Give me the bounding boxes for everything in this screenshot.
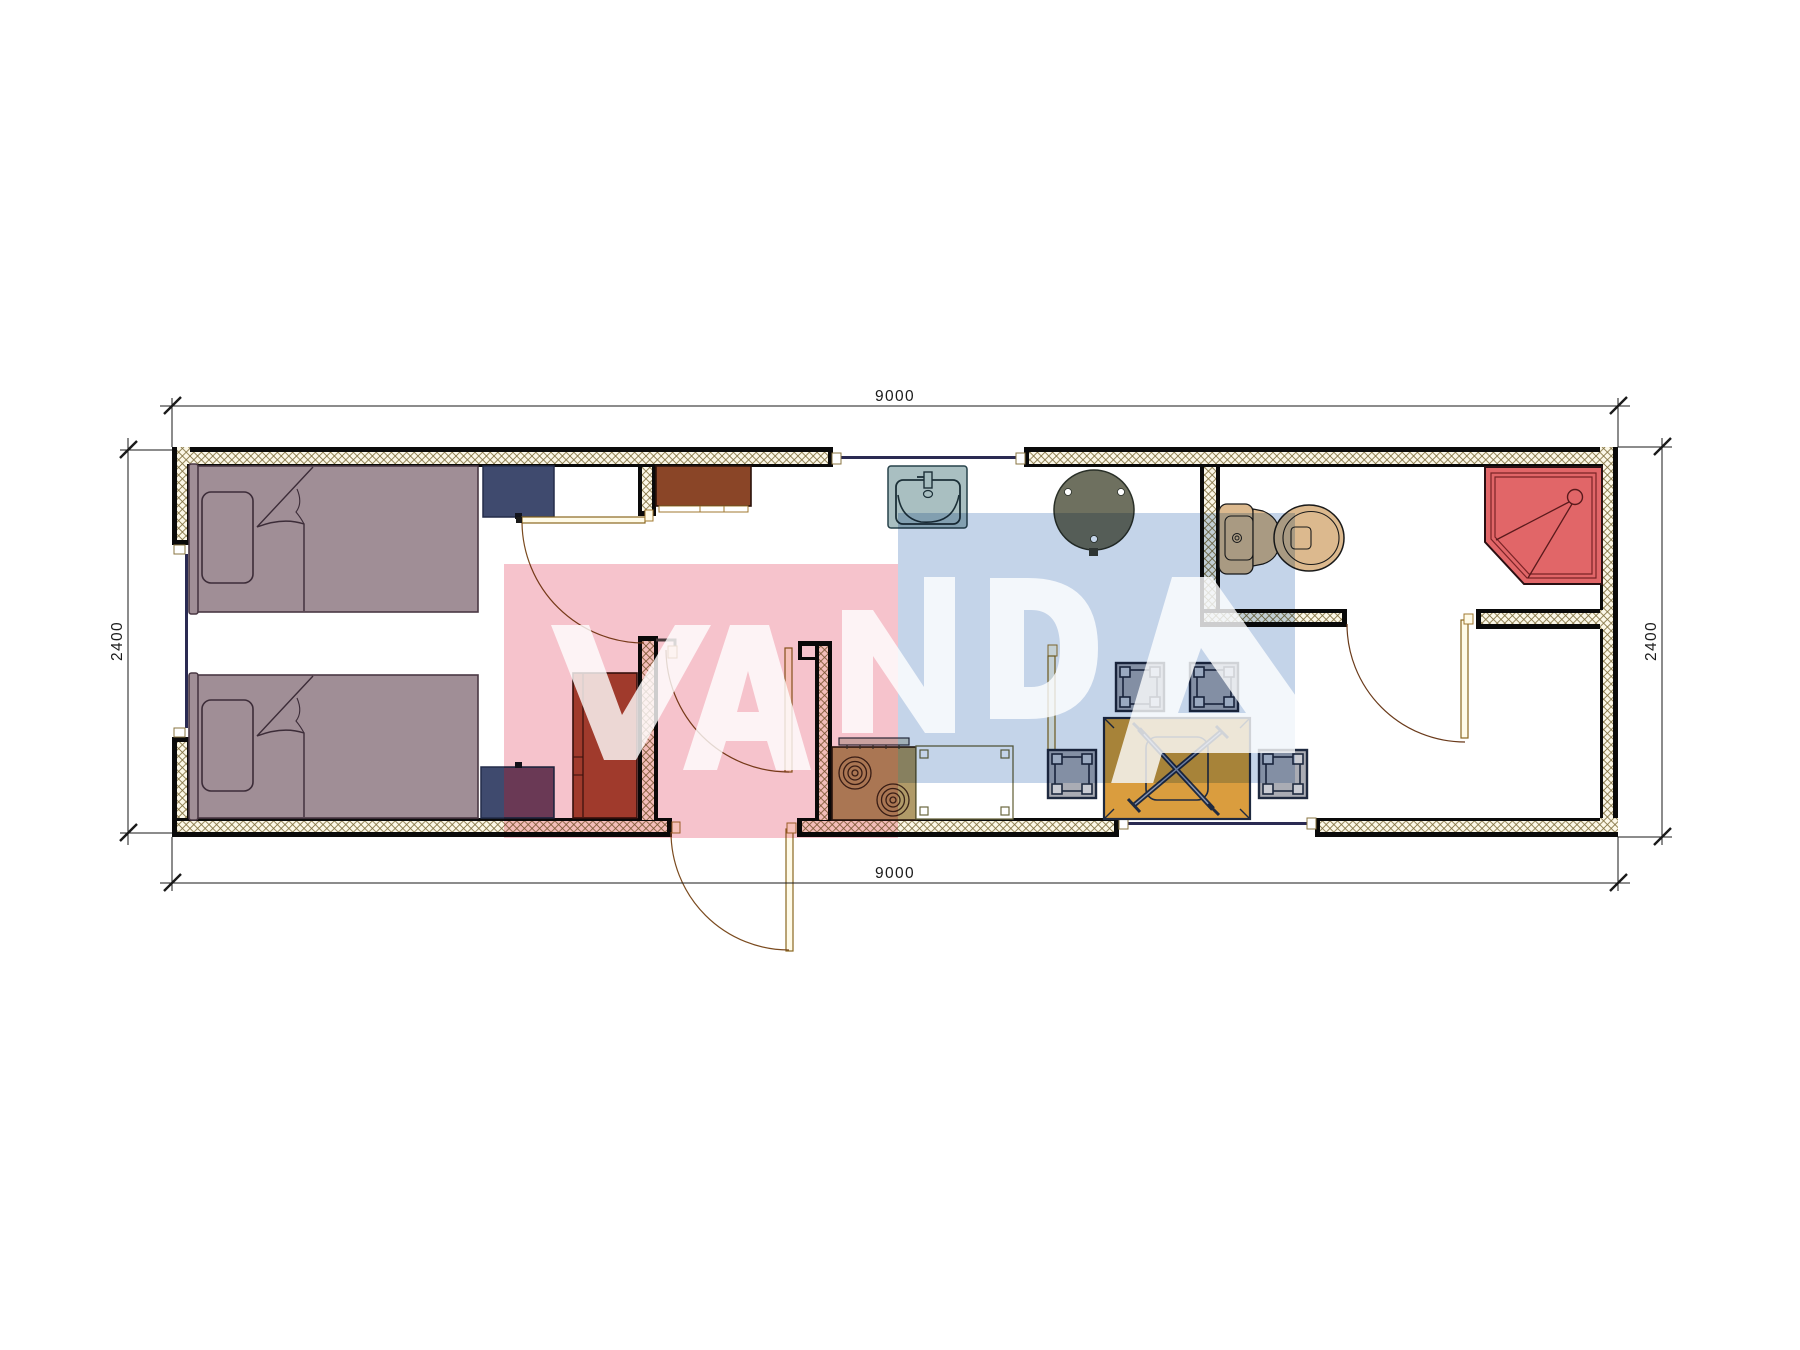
svg-text:2400: 2400: [109, 621, 126, 661]
svg-text:9000: 9000: [875, 865, 915, 882]
svg-text:9000: 9000: [875, 388, 915, 405]
svg-text:2400: 2400: [1643, 621, 1660, 661]
